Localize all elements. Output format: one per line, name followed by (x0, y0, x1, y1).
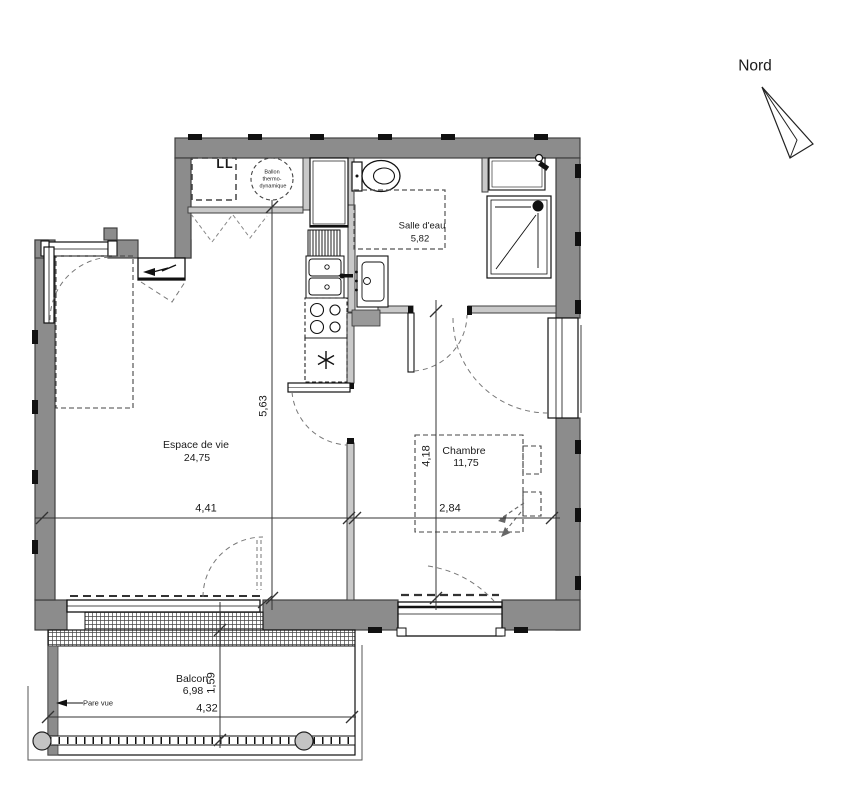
room-label-salle-deau: Salle d'eau (399, 221, 446, 231)
balcony-hatch (48, 630, 355, 646)
door-swing-arc (292, 392, 347, 445)
kitchen (305, 158, 353, 382)
dim-chambre-height: 4,18 (422, 445, 433, 466)
water-heater-label-3: dynamique (260, 184, 287, 190)
closet-doors (191, 214, 267, 242)
room-label-chambre: Chambre (442, 446, 485, 457)
threshold-hatch (85, 612, 263, 630)
cooktop (305, 298, 347, 338)
bathroom-vanity (489, 158, 545, 190)
north-arrow-icon (762, 87, 813, 158)
room-area-salle-deau: 5,82 (411, 234, 430, 244)
dim-chambre-width: 2,84 (439, 504, 460, 515)
pare-vue-label: Pare vue (83, 699, 113, 707)
dim-balcon-width: 4,32 (196, 704, 217, 715)
window-swing-arc (453, 318, 548, 413)
dim-living-width: 4,41 (195, 504, 216, 515)
fridge-asterisk-icon (318, 351, 334, 369)
kitchen-drainboard (308, 230, 340, 256)
chambre-east-window (548, 318, 578, 418)
bathroom-door (408, 313, 414, 372)
dim-balcon-depth: 1,59 (207, 672, 218, 693)
room-label-espace-de-vie: Espace de vie (163, 440, 229, 451)
bathroom (352, 155, 551, 327)
railing-post (33, 732, 51, 750)
furniture (56, 158, 541, 534)
furniture-arrowheads (498, 514, 510, 537)
room-label-balcon: Balcon (176, 674, 208, 685)
shower-drain (533, 201, 544, 212)
kitchen-tall-unit (310, 158, 348, 227)
north-label: Nord (738, 58, 772, 74)
dim-living-height: 5,63 (259, 395, 270, 416)
water-heater-label-1: Ballon (264, 170, 279, 176)
railing-post (295, 732, 313, 750)
room-area-espace-de-vie: 24,75 (184, 453, 210, 464)
floor-plan-svg (0, 0, 867, 800)
dimension-lines (35, 200, 560, 748)
water-heater-label-2: thermo- (263, 177, 282, 183)
faucet-icon (536, 155, 543, 162)
window-swing-arc (50, 257, 113, 320)
nightstand (523, 446, 541, 474)
nightstand (523, 492, 541, 516)
room-area-balcon: 6,98 (183, 686, 203, 697)
windows (41, 241, 581, 636)
room-area-chambre: 11,75 (453, 458, 479, 469)
window-swing-arc (203, 537, 263, 597)
floor-plan: Nord Salle d'eau 5,82 Espace de vie 24,7… (0, 0, 867, 800)
door-swing-arc (414, 315, 467, 371)
entry-door (138, 258, 185, 280)
living-furniture-zone (56, 256, 133, 408)
washing-machine-label: LL (216, 158, 233, 171)
